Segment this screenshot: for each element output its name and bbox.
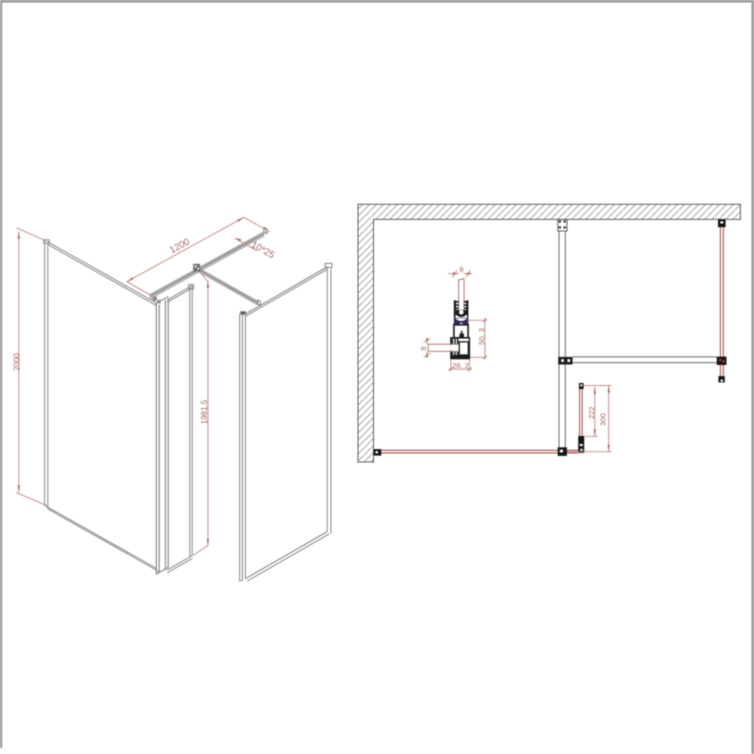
svg-text:1981.5: 1981.5 bbox=[200, 399, 209, 424]
svg-text:8: 8 bbox=[419, 346, 428, 350]
svg-text:26. 2: 26. 2 bbox=[452, 361, 469, 370]
svg-text:300: 300 bbox=[598, 413, 607, 426]
svg-text:2000: 2000 bbox=[12, 353, 21, 371]
svg-text:222: 222 bbox=[587, 407, 596, 420]
svg-text:8: 8 bbox=[459, 265, 463, 274]
svg-text:1200: 1200 bbox=[168, 236, 192, 256]
svg-text:50. 3: 50. 3 bbox=[477, 328, 486, 345]
svg-text:10*25: 10*25 bbox=[249, 239, 276, 261]
